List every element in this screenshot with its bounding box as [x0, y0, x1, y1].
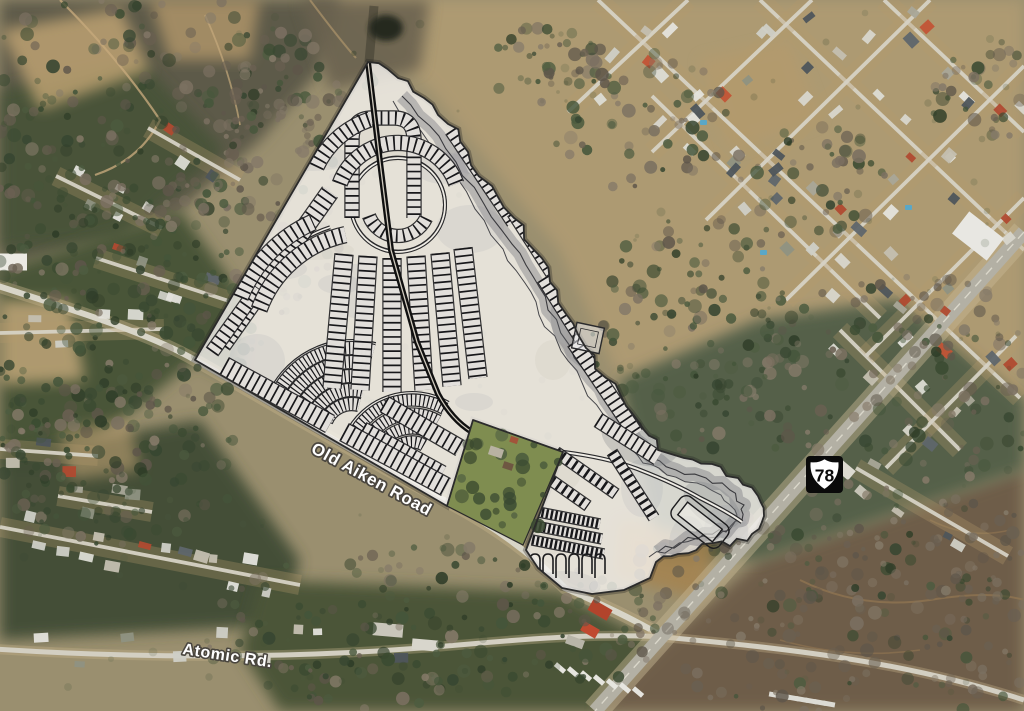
us-route-78-shield: 78: [806, 456, 843, 493]
satellite-map-view: Old Aiken Road Atomic Rd. 78: [0, 0, 1024, 711]
route-number: 78: [815, 466, 835, 486]
aerial-map-canvas: Old Aiken Road Atomic Rd. 78: [0, 0, 1024, 711]
